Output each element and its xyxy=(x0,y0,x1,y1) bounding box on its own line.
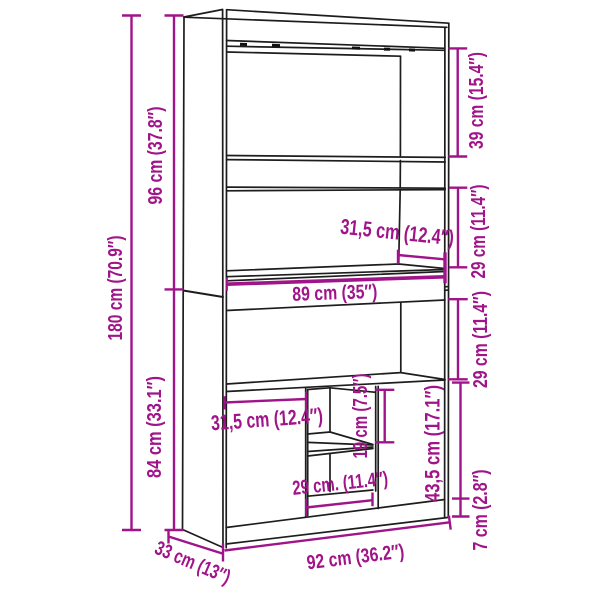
svg-text:29 cm (11.4″): 29 cm (11.4″) xyxy=(470,291,492,388)
svg-text:19 cm (7.5″): 19 cm (7.5″) xyxy=(350,374,372,459)
svg-text:39 cm (15.4″): 39 cm (15.4″) xyxy=(466,52,488,149)
svg-text:43,5 cm (17.1″): 43,5 cm (17.1″) xyxy=(422,385,445,502)
svg-text:96 cm (37.8″): 96 cm (37.8″) xyxy=(145,107,167,205)
svg-text:29 cm (11.4″): 29 cm (11.4″) xyxy=(468,185,490,279)
svg-text:180 cm (70.9″): 180 cm (70.9″) xyxy=(105,236,127,341)
svg-text:84 cm (33.1″): 84 cm (33.1″) xyxy=(144,376,166,478)
svg-text:7 cm (2.8″): 7 cm (2.8″) xyxy=(470,470,492,551)
svg-text:89 cm (35″): 89 cm (35″) xyxy=(292,281,378,306)
